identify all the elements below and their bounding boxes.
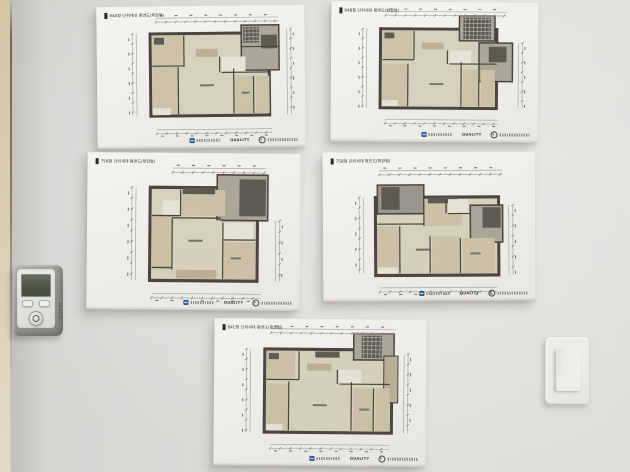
builder-name-text (190, 301, 214, 304)
floorplan-board-75b: 75B형 단위세대 평면도(확장형) QUALITY (323, 151, 536, 301)
title-bullet-icon (339, 7, 342, 13)
builder-logo-icon (309, 456, 314, 461)
board-title: 84A형 단위세대 평면도(확장형) (104, 12, 204, 19)
floorplan-board-84a: 84A형 단위세대 평면도(확장형) QUALITY (96, 5, 305, 149)
wall-controller-device (13, 265, 63, 336)
board-footer: QUALITY (309, 455, 417, 463)
certification-text (387, 458, 417, 461)
board-title-text: 84A형 단위세대 평면도(확장형) (109, 14, 164, 18)
certification-text (497, 292, 527, 295)
floorplan-drawing (331, 1, 539, 142)
title-bullet-icon (104, 13, 107, 19)
wall-corner-frame (0, 0, 10, 472)
controller-button-row (17, 300, 55, 307)
light-switch-plate (545, 336, 590, 404)
board-footer: QUALITY (189, 136, 298, 144)
certification-text (268, 138, 298, 141)
lcd-screen (21, 274, 51, 297)
floorplan-drawing (86, 152, 300, 311)
builder-name-text (429, 133, 453, 136)
board-title-text: 84B형 단위세대 평면도(확장형) (344, 9, 399, 13)
board-footer: QUALITY (183, 299, 291, 307)
certification-logo-icon (490, 131, 497, 138)
corner-shadow (12, 0, 46, 472)
controller-right-button (39, 300, 50, 307)
board-title-text: 75B형 단위세대 평면도(확장형) (336, 159, 391, 163)
board-title: 75A형 단위세대 평면도(확장형) (96, 158, 196, 165)
builder-logo-icon (189, 138, 194, 143)
builder-logo-icon (183, 300, 188, 305)
builder-logo-icon (421, 132, 426, 137)
quality-logotype: QUALITY (230, 138, 250, 142)
certification-logo-icon (258, 136, 265, 143)
title-bullet-icon (331, 158, 334, 164)
builder-name-text (316, 457, 340, 460)
builder-name-text (426, 292, 450, 295)
board-footer: QUALITY (421, 131, 529, 139)
board-title: 84B형 단위세대 평면도(확장형) (339, 7, 439, 14)
board-title: 75B형 단위세대 평면도(확장형) (331, 158, 430, 165)
title-bullet-icon (223, 324, 226, 330)
showroom-wall-photo: 84A형 단위세대 평면도(확장형) QUALITY 84B형 단위세대 평면도… (0, 0, 630, 472)
quality-logotype: QUALITY (223, 301, 242, 305)
controller-brand-label (59, 303, 61, 319)
builder-logo-icon (419, 291, 424, 296)
floorplan-board-84b: 84B형 단위세대 평면도(확장형) QUALITY (331, 1, 539, 142)
floorplan-board-75a: 75A형 단위세대 평면도(확장형) QUALITY (86, 152, 300, 311)
builder-name-text (197, 139, 221, 142)
certification-logo-icon (488, 290, 495, 297)
floorplan-board-84c: 84C형 단위세대 평면도(확장형) QUALITY (213, 318, 426, 467)
quality-logotype: QUALITY (459, 291, 478, 295)
controller-dial-button (29, 311, 44, 326)
title-bullet-icon (96, 158, 99, 164)
board-title: 84C형 단위세대 평면도(확장형) (223, 324, 323, 331)
quality-logotype: QUALITY (349, 457, 368, 461)
floorplan-drawing (96, 5, 305, 149)
board-title-text: 75A형 단위세대 평면도(확장형) (101, 159, 156, 163)
certification-logo-icon (378, 456, 385, 463)
floorplan-drawing (323, 151, 536, 301)
certification-logo-icon (252, 300, 259, 307)
switch-rocker (555, 349, 580, 391)
controller-faceplate (17, 269, 55, 328)
certification-text (500, 134, 530, 137)
quality-logotype: QUALITY (462, 133, 481, 137)
floorplan-drawing (213, 318, 426, 467)
certification-text (261, 302, 291, 305)
board-title-text: 84C형 단위세대 평면도(확장형) (228, 325, 283, 329)
board-footer: QUALITY (419, 289, 527, 297)
controller-left-button (22, 300, 33, 307)
